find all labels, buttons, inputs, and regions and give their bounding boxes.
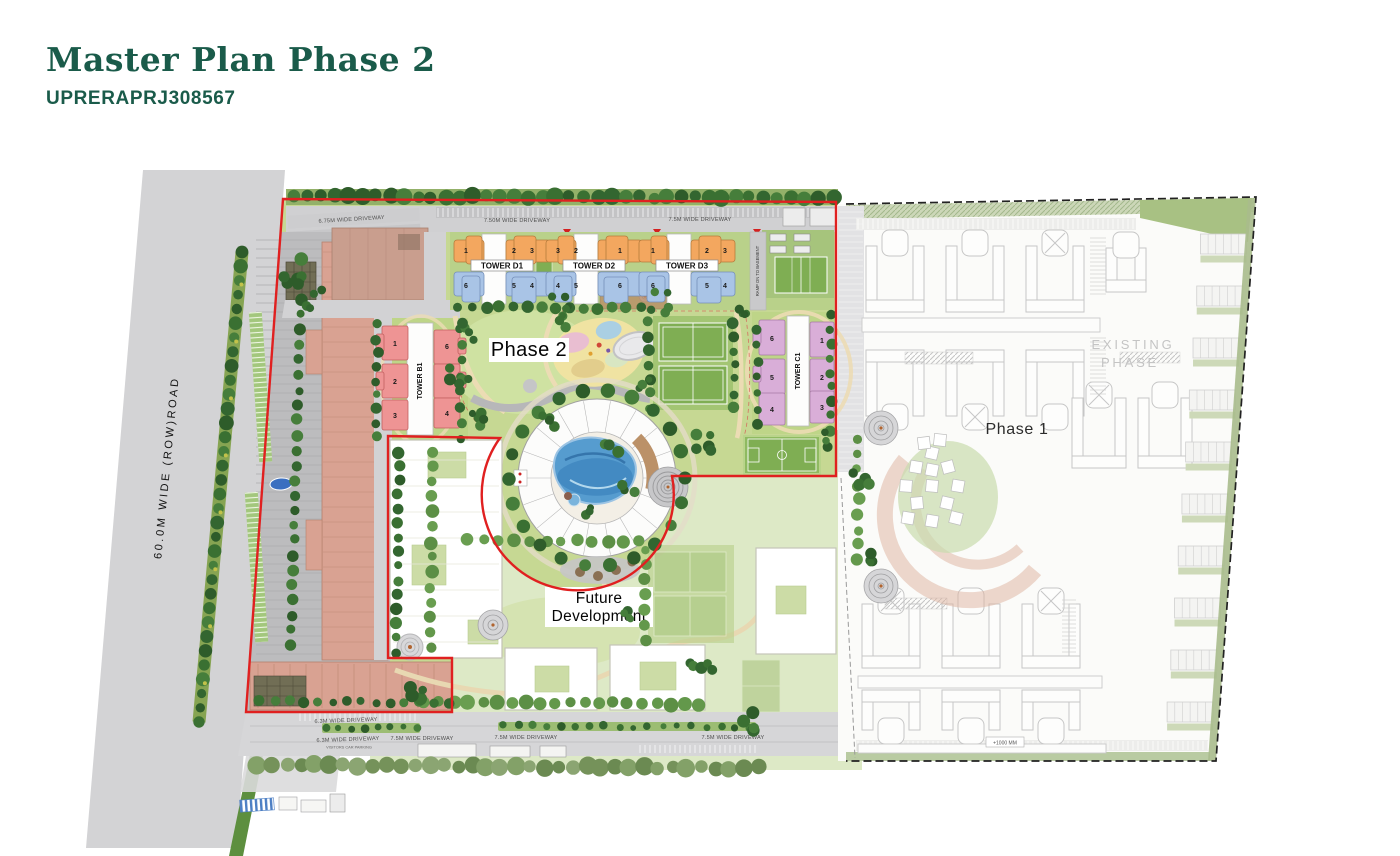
hedge — [498, 722, 756, 731]
tree-icon — [663, 422, 677, 436]
tree-icon — [371, 419, 380, 428]
tree-icon — [546, 188, 563, 205]
tree-icon — [223, 388, 236, 401]
tower-d1-label: TOWER D1 — [481, 262, 524, 271]
unit-number: 5 — [512, 283, 516, 290]
building-detail — [398, 234, 420, 250]
shrub-icon — [239, 283, 243, 287]
tree-icon — [444, 373, 456, 385]
tree-icon — [196, 672, 210, 686]
tree-icon — [579, 304, 589, 314]
tree-icon — [236, 246, 249, 259]
tree-icon — [617, 535, 630, 548]
gate-structure — [418, 744, 476, 757]
tree-icon — [386, 699, 396, 709]
fountain-center — [879, 426, 882, 429]
tree-icon — [424, 611, 436, 623]
tree-icon — [361, 724, 370, 733]
tree-icon — [853, 435, 862, 444]
tree-icon — [625, 390, 640, 405]
tree-icon — [479, 697, 490, 708]
tree-icon — [375, 724, 382, 731]
tree-icon — [234, 259, 248, 273]
green-strip — [1200, 256, 1246, 263]
phase2-label: Phase 2 — [491, 339, 567, 361]
tree-icon — [393, 577, 403, 587]
commercial-building-wing — [306, 330, 322, 374]
tree-icon — [211, 532, 221, 542]
tree-icon — [208, 544, 222, 558]
tree-icon — [293, 370, 303, 380]
green-strip — [1193, 360, 1239, 367]
shelter — [810, 208, 836, 226]
unit-number: 1 — [393, 341, 397, 348]
tree-icon — [642, 332, 653, 343]
tree-icon — [524, 536, 535, 547]
tree-icon — [457, 318, 468, 329]
tree-icon — [221, 402, 235, 416]
tree-icon — [427, 447, 438, 458]
green-strip — [1171, 672, 1217, 679]
tree-icon — [214, 488, 227, 501]
tree-icon — [233, 290, 243, 300]
tree-icon — [445, 363, 454, 372]
tree-icon — [641, 546, 649, 554]
building-bar — [946, 300, 1004, 312]
existing-corridor — [858, 676, 1102, 688]
tree-icon — [825, 369, 834, 378]
tree-icon — [285, 695, 295, 705]
tree-icon — [426, 490, 438, 502]
tree-icon — [437, 758, 451, 772]
commercial-building-wing — [306, 520, 322, 570]
tree-icon — [753, 373, 761, 381]
tree-icon — [737, 715, 750, 728]
tree-icon — [317, 286, 326, 295]
tree-icon — [292, 446, 302, 456]
tree-icon — [572, 723, 579, 730]
existing-clubhouse-block — [901, 511, 915, 525]
tree-icon — [557, 722, 566, 731]
tree-icon — [521, 191, 536, 206]
tree-icon — [522, 301, 534, 313]
tree-icon — [225, 375, 236, 386]
tree-icon — [340, 187, 357, 204]
future-court — [776, 586, 806, 614]
unit-block — [604, 277, 628, 303]
tree-icon — [290, 491, 300, 501]
tree-icon — [534, 539, 547, 552]
tree-icon — [506, 497, 520, 511]
tree-icon — [637, 302, 647, 312]
tower-c1-label: TOWER C1 — [795, 352, 802, 389]
tree-icon — [392, 589, 403, 600]
unit-number: 4 — [530, 283, 534, 290]
tree-icon — [290, 534, 299, 543]
tree-icon — [287, 611, 297, 621]
future-court-small — [742, 660, 780, 712]
tower-c1: TOWER C1 6 5 4 1 2 3 — [753, 316, 834, 426]
unit-number: 4 — [556, 283, 560, 290]
building-pod — [878, 718, 904, 744]
tree-icon — [468, 303, 477, 312]
shrub-icon — [219, 510, 223, 514]
future-court — [535, 666, 569, 692]
building-bar — [1106, 280, 1146, 292]
entry-marker — [519, 473, 522, 476]
tree-icon — [553, 392, 566, 405]
existing-corridor — [862, 318, 1100, 332]
tree-icon — [499, 721, 506, 728]
tree-icon — [461, 533, 474, 546]
building-bar — [942, 656, 1000, 668]
tree-icon — [373, 347, 384, 358]
existing-clubhouse-block — [900, 480, 913, 493]
green-strip — [1189, 412, 1235, 419]
existing-clubhouse-block — [940, 496, 954, 510]
tree-icon — [373, 390, 380, 397]
tree-icon — [604, 439, 615, 450]
tree-icon — [556, 537, 565, 546]
tree-icon — [193, 716, 204, 727]
tree-icon — [679, 472, 692, 485]
tennis-courts — [653, 316, 733, 410]
tree-icon — [455, 402, 465, 412]
tree-icon — [674, 444, 688, 458]
hatch-strip — [905, 352, 973, 364]
tree-icon — [336, 757, 350, 771]
tree-icon — [457, 418, 467, 428]
tree-icon — [865, 548, 876, 559]
shrub-icon — [208, 624, 212, 628]
tree-icon — [543, 723, 550, 730]
tree-icon — [749, 723, 759, 733]
tree-icon — [271, 696, 281, 706]
tree-icon — [365, 759, 380, 774]
unit-number: 3 — [723, 248, 727, 255]
tree-icon — [592, 303, 604, 315]
tree-icon — [853, 492, 865, 504]
green-strip — [1167, 724, 1213, 731]
tree-icon — [219, 431, 231, 443]
tree-icon — [729, 348, 737, 356]
driveway-label: 7.50M WIDE DRIVEWAY — [484, 218, 550, 224]
tree-icon — [576, 384, 590, 398]
tree-icon — [313, 698, 322, 707]
future-tennis — [648, 545, 734, 643]
tree-icon — [826, 410, 834, 418]
fountain-center — [879, 584, 882, 587]
tree-icon — [580, 697, 591, 708]
tree-icon — [852, 538, 863, 549]
tree-icon — [620, 759, 637, 776]
tree-icon — [621, 697, 633, 709]
tree-icon — [692, 698, 705, 711]
tree-icon — [394, 561, 402, 569]
building-bar — [862, 656, 920, 668]
tree-icon — [555, 552, 568, 565]
master-plan-svg: 60.0M WIDE (ROW)ROAD RAMP DN TO BASEMENT… — [0, 0, 1400, 856]
tree-icon — [372, 362, 382, 372]
tree-icon — [507, 697, 519, 709]
fountain-center — [491, 623, 494, 626]
tree-icon — [492, 189, 506, 203]
tree-icon — [586, 536, 598, 548]
tree-icon — [727, 317, 739, 329]
tree-icon — [491, 759, 508, 776]
tree-icon — [555, 316, 564, 325]
tree-icon — [645, 387, 655, 397]
building-pod — [882, 230, 908, 256]
tree-icon — [424, 537, 438, 551]
tree-icon — [306, 304, 314, 312]
tree-icon — [630, 725, 636, 731]
tree-icon — [371, 403, 382, 414]
tree-icon — [357, 697, 365, 705]
tree-icon — [627, 615, 634, 622]
tree-icon — [425, 627, 435, 637]
tree-icon — [465, 328, 473, 336]
existing-clubhouse-block — [949, 511, 964, 526]
blue-structure — [240, 798, 275, 812]
tree-icon — [853, 450, 861, 458]
tree-icon — [370, 335, 381, 346]
tree-icon — [643, 316, 653, 326]
tree-icon — [647, 404, 660, 417]
unit-block — [512, 277, 536, 303]
tree-icon — [821, 429, 829, 437]
tree-icon — [593, 697, 605, 709]
tree-icon — [291, 413, 302, 424]
tree-icon — [515, 721, 523, 729]
tree-icon — [507, 189, 522, 204]
visitors-parking-label: VISITORS CAR PARKING — [326, 745, 372, 750]
tree-icon — [413, 192, 424, 203]
tree-icon — [826, 326, 834, 334]
shelter — [783, 208, 805, 226]
unit-number: 3 — [393, 413, 397, 420]
tree-icon — [695, 760, 708, 773]
tree-icon — [754, 389, 761, 396]
tree-icon — [392, 633, 401, 642]
tree-icon — [426, 643, 436, 653]
tree-icon — [348, 726, 355, 733]
unit-number: 2 — [512, 248, 516, 255]
unit-number: 1 — [464, 248, 468, 255]
tree-icon — [427, 477, 437, 487]
tree-icon — [453, 303, 462, 312]
tree-icon — [297, 310, 305, 318]
driveway-label: 7.5M WIDE DRIVEWAY — [391, 736, 454, 742]
tree-icon — [348, 758, 366, 776]
tree-icon — [638, 380, 648, 390]
rera-number: UPRERAPRJ308567 — [46, 88, 436, 110]
entrance-canopy — [514, 470, 527, 486]
unit-number: 6 — [445, 344, 449, 351]
tree-icon — [294, 323, 306, 335]
entry-marker — [519, 481, 522, 484]
tree-icon — [200, 630, 213, 643]
unit-number: 5 — [705, 283, 709, 290]
tree-icon — [507, 757, 525, 775]
building-bar — [942, 690, 1000, 702]
tree-icon — [585, 507, 593, 515]
tree-icon — [196, 703, 205, 712]
building-bar — [1022, 656, 1080, 668]
tower-b1-label: TOWER B1 — [417, 362, 424, 399]
tree-icon — [706, 431, 714, 439]
tree-icon — [519, 695, 534, 710]
unit-number: 6 — [618, 283, 622, 290]
tree-icon — [586, 722, 594, 730]
tree-icon — [422, 756, 440, 774]
shrub-icon — [234, 340, 238, 344]
driveway-label: 7.5M WIDE DRIVEWAY — [495, 735, 558, 741]
tree-icon — [469, 336, 477, 344]
tree-icon — [509, 302, 519, 312]
plaza-tree-icon — [593, 571, 603, 581]
tree-icon — [298, 697, 309, 708]
building-pod — [1152, 382, 1178, 408]
tree-icon — [647, 306, 655, 314]
tree-icon — [649, 193, 661, 205]
tree-icon — [603, 188, 620, 205]
tree-icon — [826, 355, 834, 363]
tree-icon — [263, 757, 279, 773]
tree-icon — [286, 625, 295, 634]
tree-icon — [599, 721, 608, 730]
tower-d2-label: TOWER D2 — [573, 262, 616, 271]
tree-icon — [393, 504, 404, 515]
tree-icon — [404, 681, 417, 694]
tree-icon — [675, 496, 688, 509]
shrub-icon — [224, 453, 228, 457]
tree-icon — [439, 190, 455, 206]
existing-clubhouse-block — [909, 460, 923, 474]
tree-icon — [427, 521, 438, 532]
building-bar — [862, 690, 920, 702]
tree-icon — [294, 354, 304, 364]
tree-icon — [524, 760, 536, 772]
tree-icon — [664, 303, 673, 312]
green-strip — [1182, 516, 1228, 523]
tree-icon — [464, 187, 481, 204]
tree-icon — [633, 535, 644, 546]
tree-icon — [286, 579, 297, 590]
tree-icon — [751, 759, 766, 774]
tree-icon — [690, 190, 701, 201]
tree-icon — [390, 603, 402, 615]
green-strip — [1186, 464, 1232, 471]
existing-phase-label-2: PHASE — [1101, 355, 1159, 370]
building-bar — [1026, 300, 1084, 312]
tree-icon — [418, 686, 427, 695]
tree-icon — [676, 759, 695, 778]
tree-icon — [386, 723, 393, 730]
unit-number: 2 — [574, 248, 578, 255]
building-pod — [962, 230, 988, 256]
tree-icon — [390, 617, 402, 629]
tree-icon — [507, 534, 521, 548]
tree-icon — [460, 695, 475, 710]
tree-icon — [591, 759, 609, 777]
existing-clubhouse-block — [910, 496, 923, 509]
tree-icon — [536, 760, 553, 777]
tree-icon — [646, 376, 652, 382]
tree-icon — [728, 402, 739, 413]
green-strip — [1175, 620, 1221, 627]
tree-icon — [704, 724, 711, 731]
tree-icon — [664, 698, 679, 713]
tree-icon — [395, 475, 406, 486]
unit-number: 1 — [820, 338, 824, 345]
phase1-label: Phase 1 — [986, 421, 1049, 438]
tree-icon — [826, 310, 836, 320]
existing-phase-label-1: EXISTING — [1091, 337, 1174, 352]
building-pod — [958, 718, 984, 744]
existing-clubhouse-block — [941, 460, 956, 475]
tree-icon — [528, 721, 536, 729]
tree-icon — [354, 188, 371, 205]
tree-icon — [735, 305, 744, 314]
tree-icon — [639, 620, 650, 631]
tree-icon — [285, 639, 296, 650]
building-pod — [1038, 718, 1064, 744]
tree-icon — [205, 588, 217, 600]
tree-icon — [550, 303, 561, 314]
unit-number: 5 — [574, 283, 578, 290]
tree-icon — [752, 341, 760, 349]
unit-number: 3 — [556, 248, 560, 255]
tree-icon — [202, 616, 215, 629]
walk-plaza — [523, 379, 537, 393]
tower-d3-label: TOWER D3 — [666, 262, 709, 271]
tree-icon — [287, 594, 298, 605]
tree-icon — [320, 756, 338, 774]
tree-icon — [229, 316, 243, 330]
phase1-area: EXISTING PHASE Phase 1 +1000 MM — [838, 197, 1256, 761]
existing-clubhouse-block — [951, 479, 965, 493]
tree-icon — [393, 546, 404, 557]
tree-icon — [849, 468, 858, 477]
tree-icon — [638, 573, 650, 585]
top-parking-strip — [436, 207, 832, 218]
unit-number: 2 — [393, 379, 397, 386]
existing-corridor — [858, 744, 1106, 753]
tree-icon — [294, 340, 304, 350]
unit-block — [697, 277, 721, 303]
tree-icon — [197, 689, 206, 698]
existing-clubhouse-block — [925, 463, 939, 477]
tree-icon — [607, 696, 618, 707]
tree-icon — [426, 504, 440, 518]
tree-icon — [391, 649, 401, 659]
tree-icon — [534, 697, 547, 710]
tree-icon — [479, 415, 488, 424]
tree-icon — [863, 478, 874, 489]
page-header: Master Plan Phase 2 UPRERAPRJ308567 — [46, 40, 436, 110]
tree-icon — [720, 761, 736, 777]
tree-icon — [458, 356, 467, 365]
tree-icon — [687, 722, 694, 729]
shrub-icon — [229, 396, 233, 400]
tree-icon — [854, 526, 863, 535]
gate-structure — [490, 746, 530, 757]
volleyball-zone — [762, 230, 834, 298]
tree-icon — [253, 695, 264, 706]
tree-icon — [731, 360, 739, 368]
future-court — [412, 545, 446, 585]
